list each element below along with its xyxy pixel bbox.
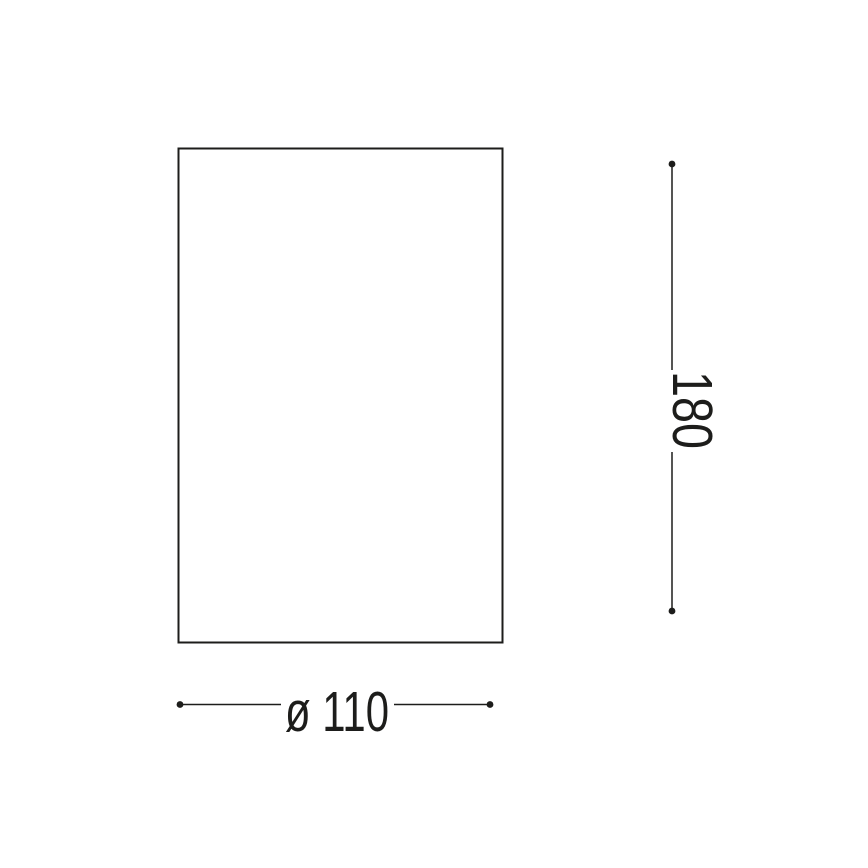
height-dimension-label: 180 [660,371,724,449]
height-dimension-endpoint-dot-bottom [669,608,676,615]
height-dimension-endpoint-dot-top [669,161,676,168]
width-dimension: ø 110 [177,680,494,744]
width-dimension-label: ø 110 [285,680,389,744]
width-dimension-endpoint-dot-right [487,701,494,708]
height-dimension: 180 [660,161,724,615]
width-dimension-endpoint-dot-left [177,701,184,708]
product-outline-rect [179,149,503,643]
dimension-drawing: ø 110 180 [0,0,868,868]
dimension-drawing-canvas: ø 110 180 [0,0,868,868]
